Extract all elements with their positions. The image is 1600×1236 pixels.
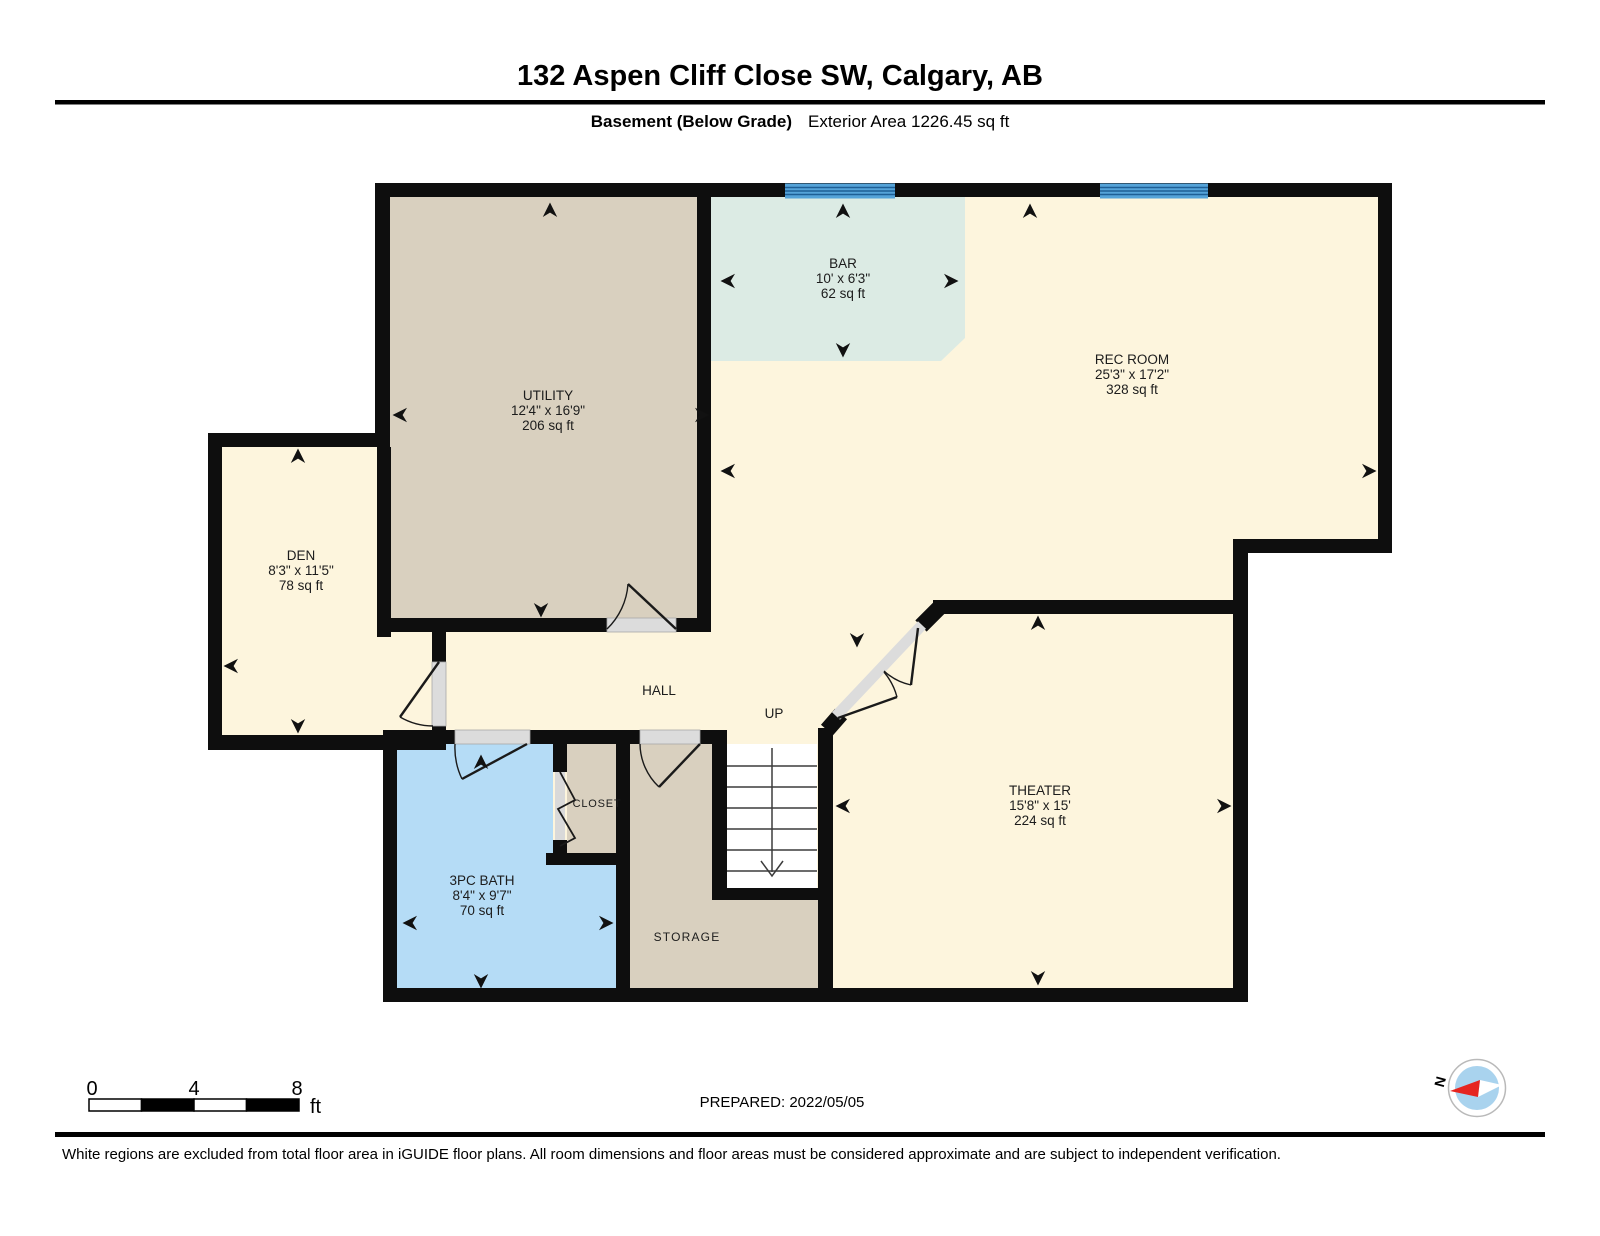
room-label-den: DEN xyxy=(287,548,316,563)
room-dims-den: 8'3" x 11'5" xyxy=(268,563,334,578)
room-area-bar: 62 sq ft xyxy=(821,286,866,301)
wall-bottom xyxy=(383,988,1248,1002)
room-label-closet: CLOSET xyxy=(573,798,622,810)
page-title: 132 Aspen Cliff Close SW, Calgary, AB xyxy=(517,60,1043,92)
room-dims-utility: 12'4" x 16'9" xyxy=(511,403,585,418)
area-label: Exterior Area 1226.45 sq ft xyxy=(808,112,1010,131)
wall-stair-left xyxy=(712,744,727,900)
wall-theater-west xyxy=(818,728,833,1002)
wall-den-left xyxy=(208,433,222,750)
bath-door-threshold xyxy=(455,730,530,744)
room-label-bath: 3PC BATH xyxy=(449,873,514,888)
den-door-threshold xyxy=(432,662,446,726)
wall-storage-left xyxy=(616,730,630,1002)
room-area-den: 78 sq ft xyxy=(279,578,324,593)
scale-tick-4: 4 xyxy=(188,1078,199,1100)
room-area-bath: 70 sq ft xyxy=(460,903,505,918)
room-dims-bath: 8'4" x 9'7" xyxy=(452,888,511,903)
prepared-date: PREPARED: 2022/05/05 xyxy=(700,1094,865,1111)
floor-plan-page: 132 Aspen Cliff Close SW, Calgary, AB Ba… xyxy=(0,0,1600,1236)
wall-utility-right xyxy=(697,183,711,632)
scale-segment xyxy=(89,1099,142,1111)
room-dims-rec-room: 25'3" x 17'2" xyxy=(1095,367,1169,382)
scale-tick-8: 8 xyxy=(291,1078,302,1100)
room-label-theater: THEATER xyxy=(1009,783,1071,798)
room-area-utility: 206 sq ft xyxy=(522,418,574,433)
compass-north-label: N xyxy=(1431,1075,1449,1089)
footer-divider xyxy=(55,1132,1545,1137)
wall-right-upper xyxy=(1378,183,1392,553)
room-label-storage: STORAGE xyxy=(654,930,721,944)
wall-den-top xyxy=(208,433,390,447)
room-label-rec-room: REC ROOM xyxy=(1095,352,1169,367)
scale-segment xyxy=(247,1099,300,1111)
scale-bar: 0 4 8 ft xyxy=(86,1078,321,1118)
wall-step xyxy=(1233,539,1392,553)
room-dims-theater: 15'8" x 15' xyxy=(1009,798,1071,813)
wall-utility-left xyxy=(375,183,390,447)
scale-tick-0: 0 xyxy=(86,1078,97,1100)
floor-label: Basement (Below Grade) xyxy=(591,112,792,131)
wall-den-right xyxy=(377,447,391,637)
room-area-theater: 224 sq ft xyxy=(1014,813,1066,828)
scale-segment xyxy=(194,1099,247,1111)
floor-plan-image: 132 Aspen Cliff Close SW, Calgary, AB Ba… xyxy=(0,0,1600,1236)
wall-bifold-stub-top xyxy=(553,744,567,772)
room-area-rec-room: 328 sq ft xyxy=(1106,382,1158,397)
stairs-up-label: UP xyxy=(765,706,784,721)
title-divider xyxy=(55,100,1545,105)
storage-door-threshold xyxy=(640,730,700,744)
compass-icon: N xyxy=(1431,1060,1506,1117)
scale-segment xyxy=(142,1099,195,1111)
room-label-bar: BAR xyxy=(829,256,857,271)
wall-theater-top xyxy=(933,600,1248,614)
scale-unit: ft xyxy=(310,1096,322,1118)
room-label-utility: UTILITY xyxy=(523,388,573,403)
room-label-hall: HALL xyxy=(642,683,676,698)
room-dims-bar: 10' x 6'3" xyxy=(816,271,870,286)
wall-left-bath xyxy=(383,730,397,1002)
disclaimer-text: White regions are excluded from total fl… xyxy=(62,1146,1281,1163)
wall-stair-bottom xyxy=(712,888,833,900)
